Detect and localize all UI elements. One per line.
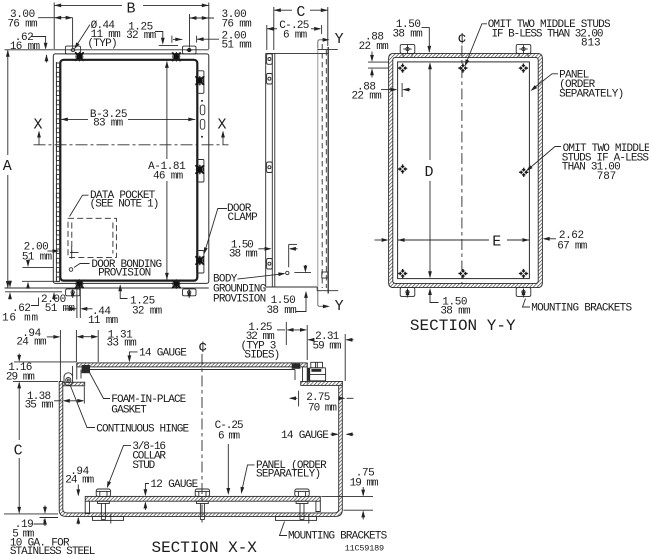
svg-text:SEPARATELY): SEPARATELY) [256,468,321,480]
svg-text:PROVISION: PROVISION [213,293,266,305]
svg-text:D: D [425,164,434,181]
svg-text:MOUNTING BRACKETS: MOUNTING BRACKETS [288,530,388,542]
svg-text:59 mm: 59 mm [313,341,342,353]
svg-text:STAINLESS STEEL: STAINLESS STEEL [10,546,95,556]
svg-text:Y: Y [335,31,344,48]
svg-text:38 mm: 38 mm [267,305,298,317]
svg-text:6 mm: 6 mm [283,29,308,41]
svg-text:B: B [127,1,136,18]
svg-text:83 mm: 83 mm [93,118,124,130]
svg-text:SEPARATELY): SEPARATELY) [559,88,624,100]
svg-text:SIDES): SIDES) [244,350,279,362]
svg-text:33 mm: 33 mm [107,337,138,349]
svg-text:C: C [14,442,23,459]
svg-text:X: X [218,116,227,133]
svg-text:19 mm: 19 mm [350,477,379,489]
svg-text:¢: ¢ [458,31,467,48]
svg-text:CLAMP: CLAMP [228,212,259,224]
svg-text:32 mm: 32 mm [132,305,163,317]
svg-text:24 mm: 24 mm [16,336,47,348]
svg-text:(SEE NOTE 1): (SEE NOTE 1) [90,198,159,210]
svg-text:38 mm: 38 mm [229,249,258,261]
svg-text:51 mm: 51 mm [22,251,53,263]
svg-text:CONTINUOUS HINGE: CONTINUOUS HINGE [96,423,189,435]
svg-text:787: 787 [597,171,616,183]
svg-text:11C59189: 11C59189 [345,544,384,554]
svg-text:GASKET: GASKET [111,405,147,417]
svg-text:SECTION Y-Y: SECTION Y-Y [410,317,516,335]
svg-text:11 mm: 11 mm [88,315,119,327]
svg-text:22 mm: 22 mm [359,41,390,53]
svg-text:51 mm: 51 mm [222,39,253,51]
svg-text:E: E [492,233,501,250]
svg-text:12 GAUGE: 12 GAUGE [150,479,198,491]
svg-text:PROVISION: PROVISION [98,267,151,279]
svg-text:67 mm: 67 mm [557,241,588,253]
svg-text:16 mm: 16 mm [2,313,38,325]
svg-text:22 mm: 22 mm [352,91,383,103]
svg-text:14 GAUGE: 14 GAUGE [281,430,329,442]
svg-text:46 mm: 46 mm [153,171,184,183]
svg-text:C: C [296,4,305,21]
svg-text:STUD: STUD [132,460,155,472]
svg-text:X: X [34,116,43,133]
svg-text:35 mm: 35 mm [25,400,54,412]
svg-text:32 mm: 32 mm [126,30,157,42]
svg-text:813: 813 [581,38,600,50]
svg-text:6 mm: 6 mm [218,431,240,443]
svg-text:14 GAUGE: 14 GAUGE [139,347,187,359]
svg-text:38 mm: 38 mm [440,306,471,318]
svg-text:70 mm: 70 mm [308,402,337,414]
svg-text:24 mm: 24 mm [65,474,94,486]
svg-text:76 mm: 76 mm [7,19,38,31]
svg-text:16 mm: 16 mm [10,41,41,53]
svg-text:Y: Y [335,298,344,315]
svg-text:38 mm: 38 mm [393,29,424,41]
svg-text:A: A [3,158,12,175]
svg-text:SECTION X-X: SECTION X-X [152,539,258,556]
svg-text:¢: ¢ [198,340,207,357]
svg-text:76 mm: 76 mm [222,19,253,31]
svg-text:MOUNTING BRACKETS: MOUNTING BRACKETS [531,303,632,315]
svg-text:(TYP): (TYP) [87,38,117,50]
